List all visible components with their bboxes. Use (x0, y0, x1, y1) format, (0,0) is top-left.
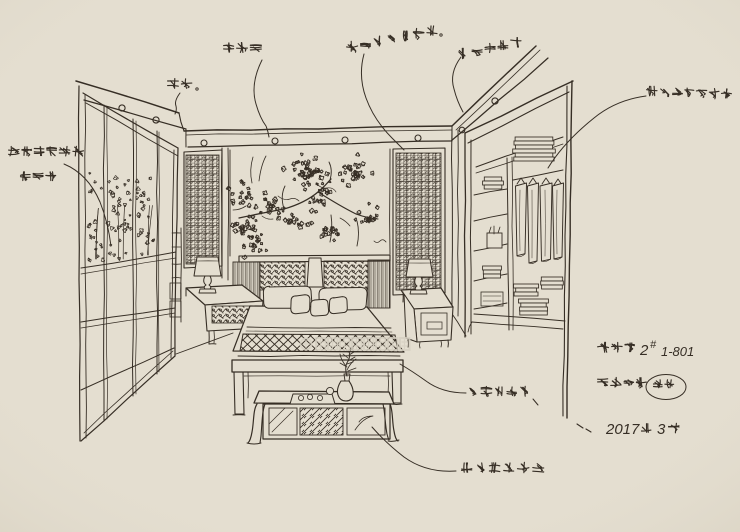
svg-text:2: 2 (639, 342, 649, 359)
svg-text:#: # (650, 339, 657, 351)
svg-text:2017: 2017 (605, 421, 640, 438)
svg-text:3: 3 (657, 421, 666, 438)
svg-text:1-801: 1-801 (661, 344, 694, 359)
